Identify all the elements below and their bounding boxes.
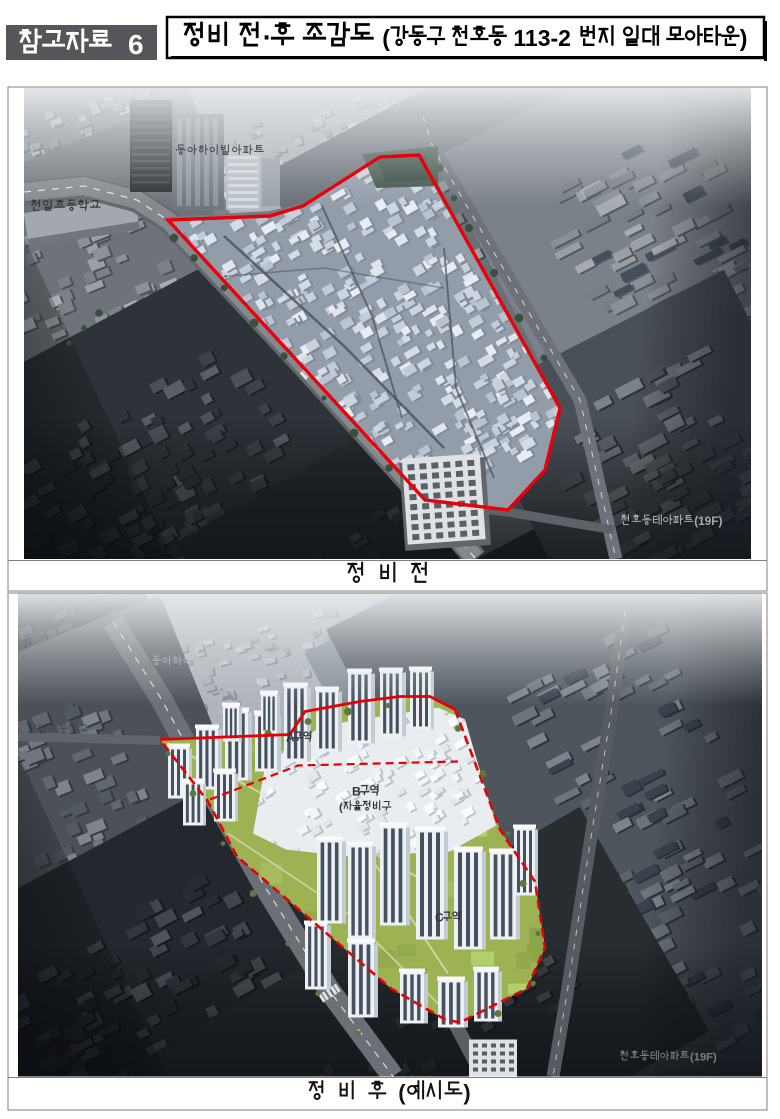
svg-text:(19F): (19F) — [690, 1052, 717, 1064]
svg-text:B: B — [352, 785, 361, 799]
svg-text:113-2: 113-2 — [507, 25, 571, 51]
svg-text:): ) — [463, 1080, 470, 1105]
svg-text:C: C — [435, 911, 444, 925]
svg-text:): ) — [740, 25, 748, 51]
svg-text:·: · — [263, 22, 272, 53]
svg-text:(19F): (19F) — [694, 514, 722, 528]
svg-text:(: ( — [339, 802, 343, 814]
svg-text:A: A — [286, 731, 295, 745]
svg-text:(: ( — [382, 25, 390, 51]
svg-text:(: ( — [398, 1080, 406, 1105]
svg-text:6: 6 — [128, 29, 144, 60]
